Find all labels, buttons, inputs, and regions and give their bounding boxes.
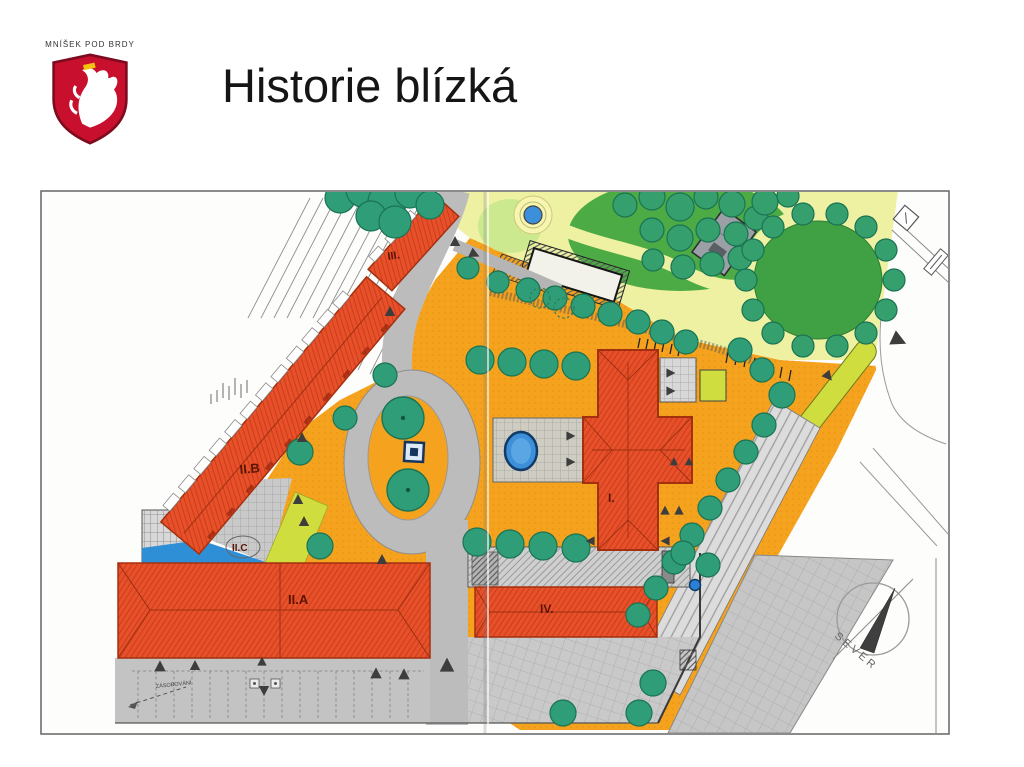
label-building-iii: III. xyxy=(387,249,401,263)
lawn-oval xyxy=(754,221,882,339)
label-building-iib: II.B xyxy=(239,460,260,477)
coat-of-arms-shield-icon xyxy=(51,53,129,145)
logo-text: MNÍŠEK POD BRDY xyxy=(30,40,150,49)
label-building-iv: IV. xyxy=(540,602,554,616)
stair-hatch xyxy=(680,650,696,670)
island-fountain xyxy=(404,442,424,462)
presentation-slide: MNÍŠEK POD BRDY Historie blízká xyxy=(0,0,1024,767)
building-iia xyxy=(118,563,430,658)
slide-title: Historie blízká xyxy=(222,58,517,113)
site-plan-figure: III. II.B II.C II.A I. IV. ZÁSOBOVÁNÍ SE… xyxy=(40,190,950,735)
pond xyxy=(514,196,552,234)
label-building-iia: II.A xyxy=(288,592,309,607)
site-plan-svg: III. II.B II.C II.A I. IV. ZÁSOBOVÁNÍ SE… xyxy=(40,190,950,735)
utility-dot xyxy=(690,580,701,591)
green-patch xyxy=(700,370,726,401)
south-road xyxy=(426,520,468,725)
label-building-i: I. xyxy=(608,491,615,505)
label-building-iic: II.C xyxy=(232,543,248,554)
town-logo: MNÍŠEK POD BRDY xyxy=(30,40,150,150)
